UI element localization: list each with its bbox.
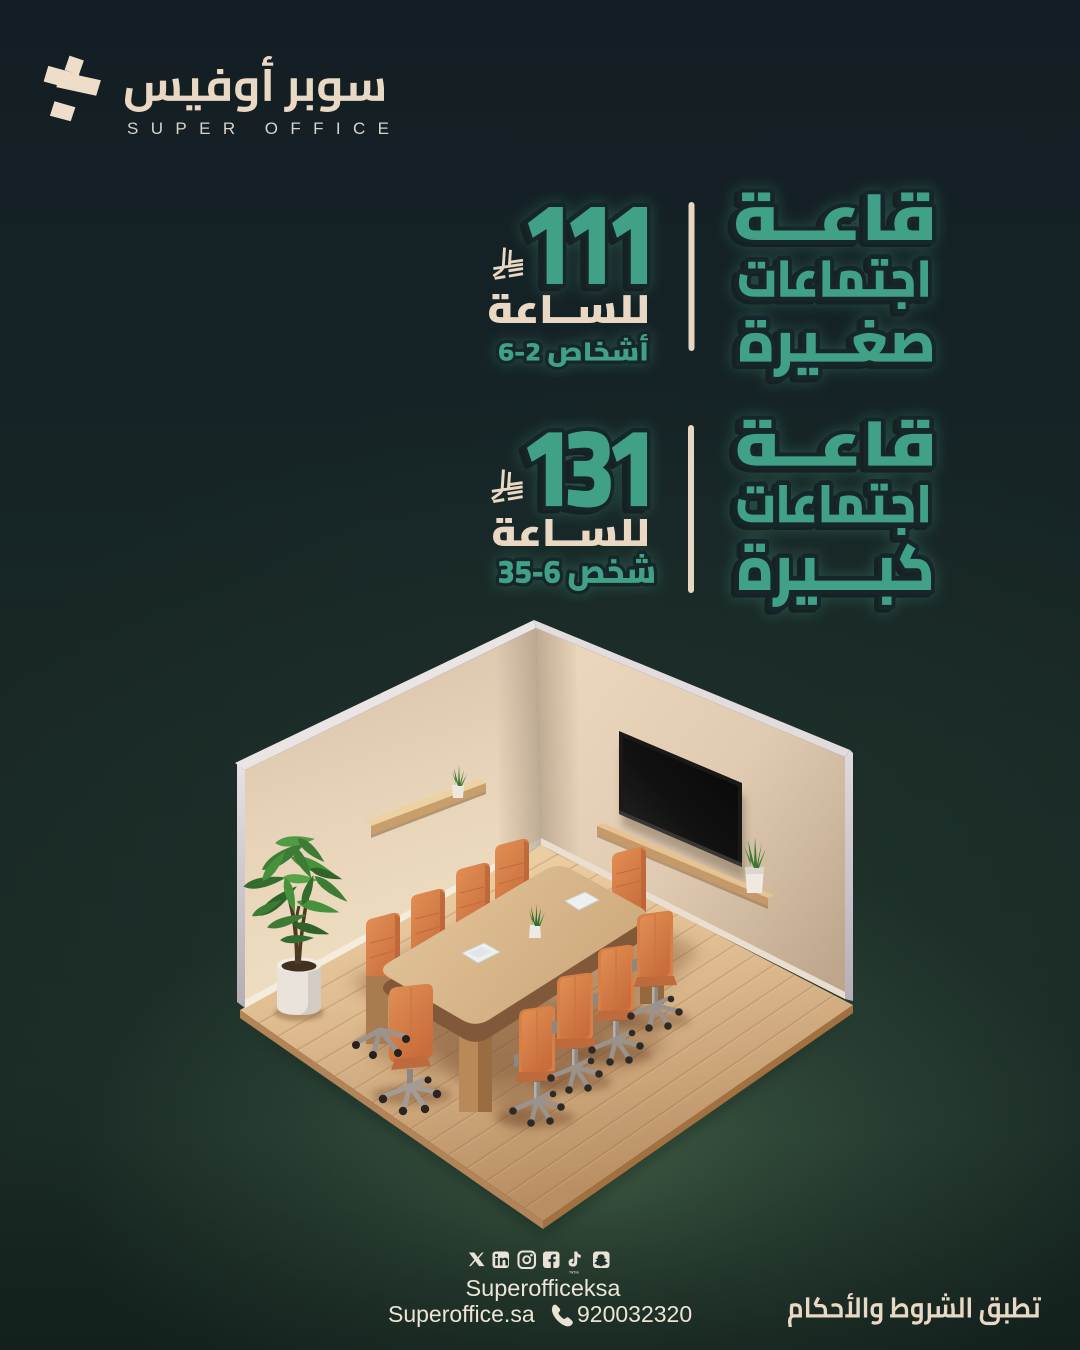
svg-text:Superofficeksa: Superofficeksa bbox=[465, 1275, 621, 1301]
svg-text:TikTok: TikTok bbox=[569, 1271, 579, 1275]
svg-text:Superoffice.sa: Superoffice.sa bbox=[388, 1301, 535, 1327]
svg-text:920032320: 920032320 bbox=[577, 1301, 692, 1327]
svg-text:SUPER OFFICE: SUPER OFFICE bbox=[127, 119, 401, 138]
